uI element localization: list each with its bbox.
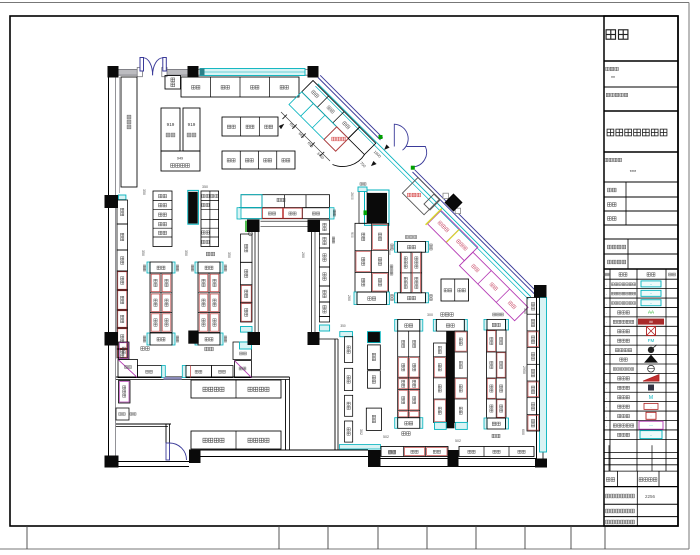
svg-text:260: 260 [347, 295, 351, 301]
svg-text:----: ---- [649, 424, 653, 428]
svg-text:.: . [606, 319, 607, 324]
svg-text:2600: 2600 [350, 192, 354, 200]
svg-text:350: 350 [142, 189, 146, 195]
svg-text:350: 350 [340, 324, 346, 328]
svg-text:.: . [606, 404, 607, 409]
svg-text:350: 350 [227, 252, 231, 258]
svg-text:.: . [606, 300, 607, 305]
svg-text:--: -- [650, 282, 652, 286]
svg-text:***: *** [630, 170, 637, 176]
svg-text:.: . [606, 413, 607, 418]
svg-text:M: M [649, 395, 653, 401]
svg-text:.: . [606, 394, 607, 399]
svg-text:FM: FM [648, 338, 655, 343]
svg-text:--: -- [650, 433, 652, 437]
svg-text:.: . [606, 357, 607, 362]
svg-text:919: 919 [188, 122, 196, 127]
svg-text:2256: 2256 [645, 494, 656, 499]
svg-text:600: 600 [521, 429, 525, 435]
svg-text:.: . [606, 385, 607, 390]
svg-text:AA: AA [648, 310, 654, 315]
svg-text:--: -- [650, 292, 652, 296]
svg-text:300: 300 [387, 249, 391, 255]
svg-text:.: . [606, 310, 607, 315]
svg-text:##: ## [649, 320, 653, 324]
svg-text:.: . [606, 347, 607, 352]
svg-text:.: . [606, 423, 607, 428]
svg-text:260: 260 [301, 252, 305, 258]
svg-text:--: -- [650, 301, 652, 305]
svg-text:919: 919 [167, 122, 175, 127]
svg-text:350: 350 [202, 185, 208, 189]
svg-text:**: ** [611, 76, 615, 82]
svg-text:350: 350 [184, 250, 188, 256]
svg-text:2950: 2950 [522, 366, 526, 374]
svg-text:..: .. [650, 405, 652, 409]
svg-text:.: . [606, 281, 607, 286]
svg-text:502: 502 [455, 439, 461, 443]
svg-text:302: 302 [359, 429, 363, 435]
svg-text:350: 350 [141, 250, 145, 256]
svg-text:300: 300 [427, 313, 433, 317]
svg-text:502: 502 [383, 435, 389, 439]
svg-text:.: . [606, 376, 607, 381]
svg-text:.: . [606, 291, 607, 296]
svg-text:.: . [606, 366, 607, 371]
svg-text:900: 900 [350, 232, 354, 238]
svg-text:.: . [606, 329, 607, 334]
svg-text:949: 949 [177, 157, 183, 161]
svg-text:300: 300 [523, 308, 527, 314]
svg-text:::: :: [650, 414, 652, 418]
svg-text:.: . [606, 338, 607, 343]
